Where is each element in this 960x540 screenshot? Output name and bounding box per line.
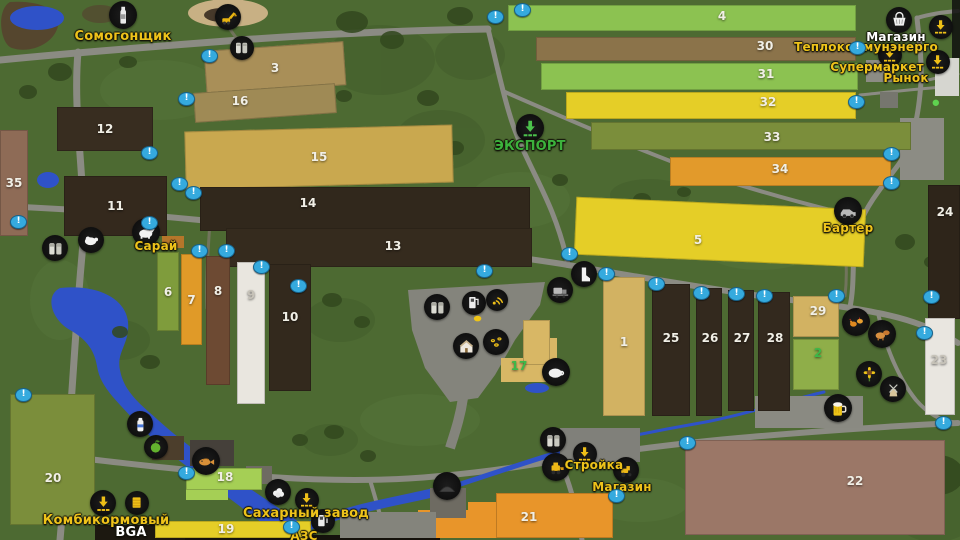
field-28[interactable]	[758, 292, 790, 411]
sheep-barn-icon[interactable]	[78, 227, 104, 253]
info-marker[interactable]: !	[201, 49, 218, 63]
field-25[interactable]	[652, 284, 690, 416]
field-8[interactable]	[206, 256, 230, 385]
construction-label: Стройка	[565, 458, 624, 472]
info-marker[interactable]: !	[561, 247, 578, 261]
field-6[interactable]	[157, 252, 179, 331]
dairy-icon[interactable]	[127, 411, 153, 437]
orchard-icon[interactable]	[144, 435, 168, 459]
info-marker[interactable]: !	[883, 147, 900, 161]
field-2[interactable]	[793, 339, 839, 390]
field-34[interactable]	[670, 157, 891, 186]
egg-sale-icon[interactable]	[471, 312, 485, 326]
radio-signal-icon[interactable]	[486, 289, 508, 311]
sandpit-excavator-icon[interactable]	[215, 4, 241, 30]
field-33[interactable]	[591, 122, 911, 150]
info-marker[interactable]: !	[608, 489, 625, 503]
machine-dealer-icon[interactable]	[547, 277, 573, 303]
field-9[interactable]	[237, 262, 265, 404]
game-map-screen: 3161215351114135246789104303132333412526…	[0, 0, 960, 540]
apiary-icon[interactable]	[483, 329, 509, 355]
boot-poi-icon[interactable]	[571, 261, 597, 287]
info-marker[interactable]: !	[514, 3, 531, 17]
info-marker[interactable]: !	[178, 92, 195, 106]
market-label: Рынок	[883, 71, 928, 85]
field-4[interactable]	[508, 5, 856, 31]
info-marker[interactable]: !	[935, 416, 952, 430]
info-marker[interactable]: !	[218, 244, 235, 258]
info-marker[interactable]: !	[883, 176, 900, 190]
fishing-spot-icon[interactable]	[192, 447, 220, 475]
windmill-icon[interactable]	[880, 376, 906, 402]
field-31[interactable]	[541, 63, 858, 90]
pub-icon[interactable]	[824, 394, 852, 422]
moonshiner-label: Сомогонщик	[74, 29, 171, 44]
field-15[interactable]	[184, 125, 453, 190]
wool-sale-icon[interactable]	[265, 479, 291, 505]
town-dot-icon[interactable]	[930, 97, 942, 109]
field-21[interactable]	[496, 493, 613, 538]
info-marker[interactable]: !	[648, 277, 665, 291]
field-7[interactable]	[181, 254, 202, 345]
seed-store-icon[interactable]	[125, 491, 149, 515]
export-label: ЭКСПОРТ	[494, 139, 565, 154]
heat-plant-label: Теплокоммунэнерго	[794, 40, 938, 54]
silage-mound-icon[interactable]	[433, 472, 461, 500]
info-marker[interactable]: !	[141, 216, 158, 230]
info-marker[interactable]: !	[476, 264, 493, 278]
field-22[interactable]	[685, 440, 945, 535]
farm-silo-icon[interactable]	[424, 294, 450, 320]
silo-north-icon[interactable]	[230, 36, 254, 60]
field-1[interactable]	[603, 277, 645, 416]
sunflower-poi-icon[interactable]	[856, 361, 882, 387]
farm-fuel-icon[interactable]	[462, 291, 486, 315]
info-marker[interactable]: !	[15, 388, 32, 402]
info-marker[interactable]: !	[916, 326, 933, 340]
info-marker[interactable]: !	[598, 267, 615, 281]
feed-mill-label: Комбикормовый	[43, 513, 170, 528]
info-marker[interactable]: !	[10, 215, 27, 229]
field-12[interactable]	[57, 107, 153, 151]
field-27[interactable]	[728, 290, 754, 411]
hen-house-icon[interactable]	[842, 308, 870, 336]
field-26[interactable]	[696, 288, 722, 416]
livestock-pen-icon[interactable]	[868, 320, 896, 348]
silo-west-icon[interactable]	[42, 235, 68, 261]
info-marker[interactable]: !	[141, 146, 158, 160]
field-32[interactable]	[566, 92, 856, 119]
map-overlay-layer: 3161215351114135246789104303132333412526…	[0, 0, 960, 540]
info-marker[interactable]: !	[290, 279, 307, 293]
info-marker[interactable]: !	[756, 289, 773, 303]
info-marker[interactable]: !	[848, 95, 865, 109]
info-marker[interactable]: !	[283, 520, 300, 534]
info-marker[interactable]: !	[923, 290, 940, 304]
barn-label: Сарай	[135, 239, 178, 253]
sugar-mill-label: Сахарный завод	[243, 506, 369, 521]
pig-barn-icon[interactable]	[542, 358, 570, 386]
info-marker[interactable]: !	[728, 287, 745, 301]
building	[880, 92, 898, 108]
info-marker[interactable]: !	[487, 10, 504, 24]
info-marker[interactable]: !	[253, 260, 270, 274]
info-marker[interactable]: !	[849, 41, 866, 55]
info-marker[interactable]: !	[191, 244, 208, 258]
info-marker[interactable]: !	[185, 186, 202, 200]
heat-plant-delivery-icon[interactable]	[929, 15, 953, 39]
field-20[interactable]	[10, 394, 95, 525]
info-marker[interactable]: !	[828, 289, 845, 303]
field-13[interactable]	[226, 228, 532, 267]
moonshiner-icon[interactable]	[109, 1, 137, 29]
info-marker[interactable]: !	[693, 286, 710, 300]
field-patch	[468, 502, 498, 538]
field-17[interactable]	[523, 320, 550, 365]
barter-label: Бартер	[823, 221, 874, 235]
farmhouse-icon[interactable]	[453, 333, 479, 359]
info-marker[interactable]: !	[679, 436, 696, 450]
construction-silo-icon[interactable]	[540, 427, 566, 453]
bga-label: BGA	[115, 525, 146, 540]
info-marker[interactable]: !	[178, 466, 195, 480]
field-14[interactable]	[200, 187, 530, 231]
